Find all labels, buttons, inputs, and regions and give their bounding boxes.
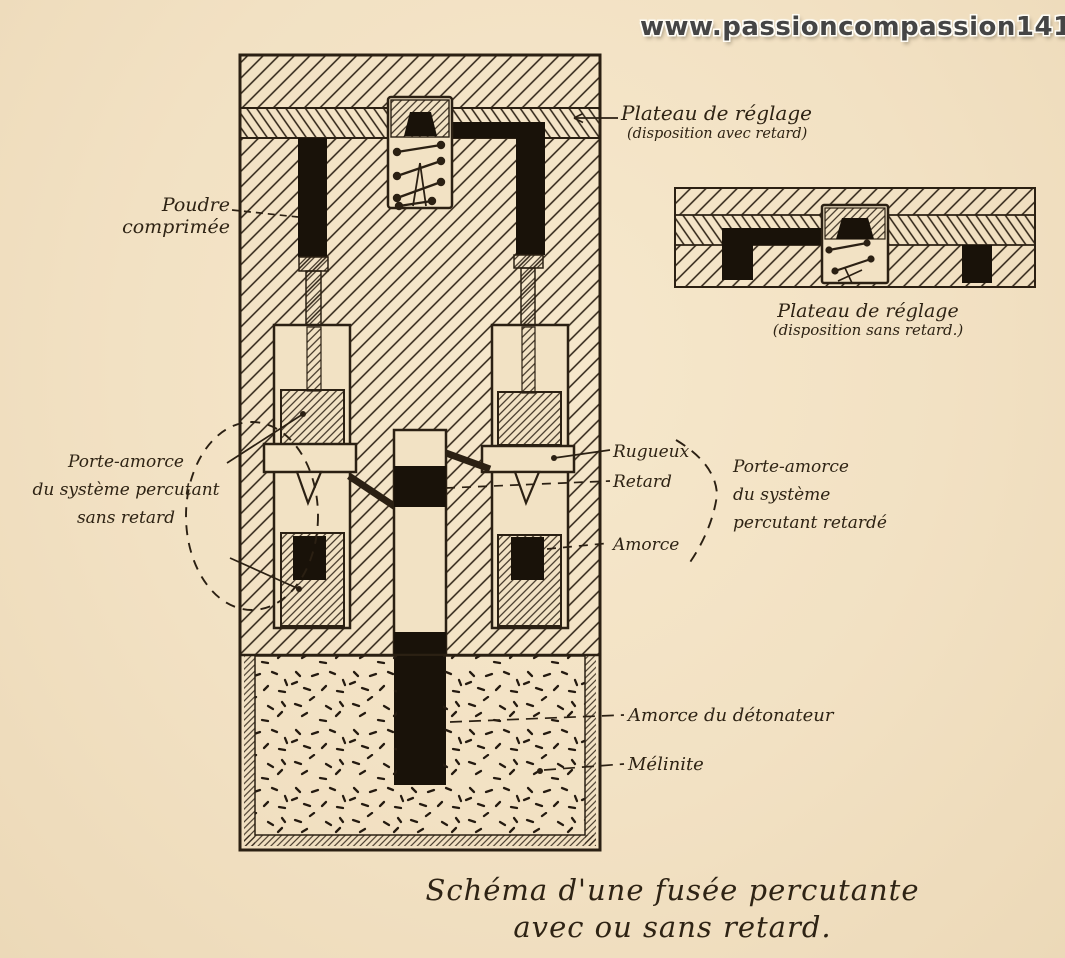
label-poudre-comprimee: Poudre comprimée: [98, 194, 230, 239]
melinite-container: [240, 655, 600, 846]
label-amorce-detonateur: Amorce du détonateur: [628, 705, 833, 726]
label-plateau-sans-retard: Plateau de réglage (disposition sans ret…: [728, 300, 1008, 340]
label-retard: Retard: [613, 472, 672, 492]
fuse-body-diagram: [240, 55, 600, 850]
label-rugueux: Rugueux: [613, 442, 689, 462]
figure-caption: Schéma d'une fusée percutante avec ou sa…: [400, 872, 945, 946]
striker-spring-housing: [388, 97, 452, 209]
scanned-page: www.passioncompassion1418.com Plateau de…: [0, 0, 1065, 958]
site-watermark: www.passioncompassion1418.com: [640, 12, 1060, 42]
label-porte-amorce-sans-retard: Porte-amorce du système percutant sans r…: [22, 448, 230, 532]
label-amorce: Amorce: [613, 535, 679, 555]
primer-holder-delayed: [482, 325, 574, 628]
label-melinite: Mélinite: [628, 754, 704, 775]
plateau-detail-diagram: [675, 188, 1035, 287]
primer-holder-no-delay: [264, 325, 356, 628]
label-plateau-avec-retard: Plateau de réglage (disposition avec ret…: [621, 102, 812, 143]
label-porte-amorce-retarde: Porte-amorce du système percutant retard…: [733, 453, 887, 537]
